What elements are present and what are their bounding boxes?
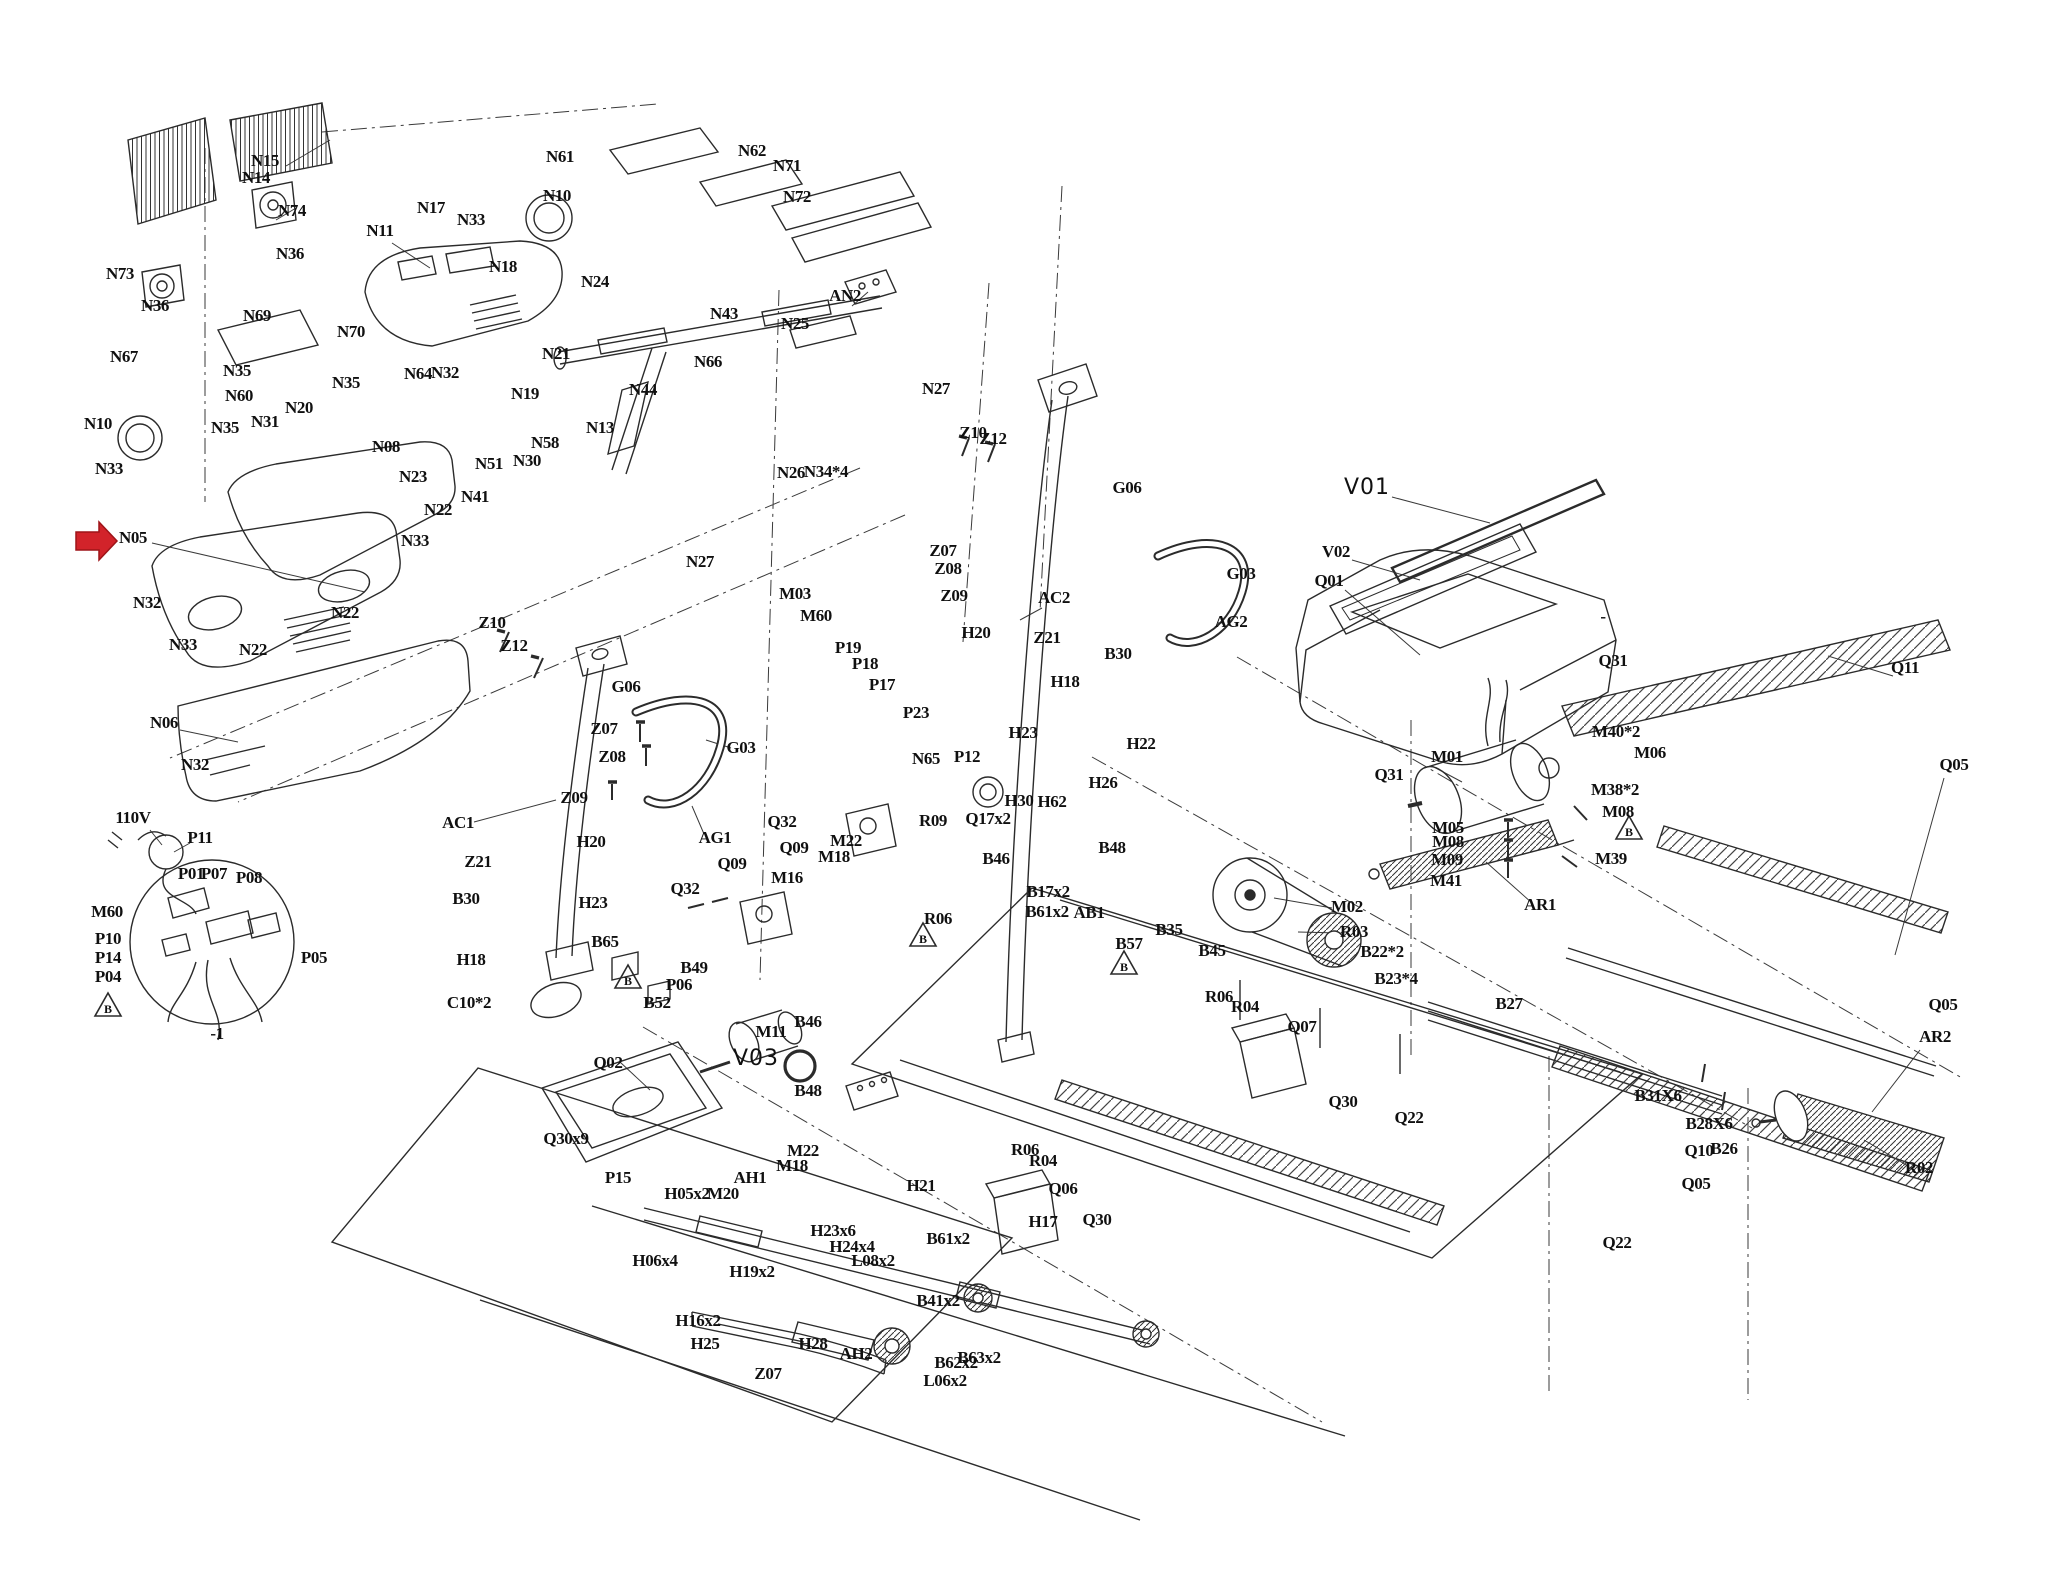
part-label-q30: Q30 <box>1082 1210 1111 1229</box>
warning-triangle-letter: B <box>104 1002 112 1016</box>
part-label-p18: P18 <box>852 654 878 673</box>
part-label-n25: N25 <box>781 314 809 333</box>
part-label-q05: Q05 <box>1928 995 1957 1014</box>
part-label-b46: B46 <box>794 1012 821 1031</box>
console-shell-n06 <box>178 640 470 801</box>
part-label-h62: H62 <box>1037 792 1066 811</box>
cupholder-ring-left <box>118 416 162 460</box>
side-rail-strip-left <box>1055 1080 1444 1225</box>
speaker-grille-n14 <box>128 118 216 224</box>
front-roller-ar1 <box>1369 820 1574 889</box>
part-label-n22: N22 <box>239 640 267 659</box>
part-label--1: -1 <box>210 1024 223 1043</box>
exploded-diagram: BBBBB N15N14N74N36N73N36N69N70N67N35N35N… <box>0 0 2048 1583</box>
warning-triangle-letter: B <box>624 974 632 988</box>
part-label-n36: N36 <box>141 296 169 315</box>
part-label-q31: Q31 <box>1598 651 1627 670</box>
part-label-b17x2: B17x2 <box>1026 882 1069 901</box>
part-label-p12: P12 <box>954 747 980 766</box>
n05-highlight-arrow <box>76 522 117 560</box>
part-label-n51: N51 <box>475 454 503 473</box>
part-label-h23: H23 <box>1008 723 1037 742</box>
part-label-n27: N27 <box>922 379 951 398</box>
part-label--: - <box>1600 607 1606 626</box>
part-label-b57: B57 <box>1115 934 1143 953</box>
part-label-b65: B65 <box>591 932 618 951</box>
bracket-b48 <box>846 1072 898 1110</box>
side-rail-strip-right <box>1657 826 1948 933</box>
part-label-n20: N20 <box>285 398 313 417</box>
part-label-z09: Z09 <box>560 788 587 807</box>
part-label-q01: Q01 <box>1314 571 1343 590</box>
part-label-n05: N05 <box>119 528 147 547</box>
handlebar-ag1 <box>636 700 723 804</box>
part-label-n58: N58 <box>531 433 559 452</box>
part-label-n33: N33 <box>401 531 429 550</box>
part-label-p14: P14 <box>95 948 122 967</box>
part-label-q11: Q11 <box>1891 658 1919 677</box>
part-label-b48: B48 <box>794 1081 821 1100</box>
part-label-c10-2: C10*2 <box>447 993 491 1012</box>
part-label-q17x2: Q17x2 <box>965 809 1010 828</box>
part-label-110v: 110V <box>115 808 151 827</box>
part-label-r06: R06 <box>924 909 952 928</box>
part-label-q07: Q07 <box>1287 1017 1317 1036</box>
part-label-n44: N44 <box>629 380 658 399</box>
part-label-n34-4: N34*4 <box>804 462 849 481</box>
part-label-m08: M08 <box>1602 802 1634 821</box>
part-label-m03: M03 <box>779 584 811 603</box>
part-label-n65: N65 <box>912 749 940 768</box>
sheet-v02 <box>1330 524 1536 634</box>
part-label-v01: V01 <box>1344 475 1390 500</box>
part-label-p06: P06 <box>666 975 692 994</box>
handlebar-ag1-inner <box>636 700 723 804</box>
part-label-q10: Q10 <box>1684 1141 1713 1160</box>
part-label-n17: N17 <box>417 198 446 217</box>
part-labels-layer: N15N14N74N36N73N36N69N70N67N35N35N64N32N… <box>84 141 1969 1390</box>
part-label-v02: V02 <box>1322 542 1350 561</box>
part-label-n32: N32 <box>181 755 209 774</box>
part-label-z07: Z07 <box>754 1364 782 1383</box>
motor-hood-q01 <box>1296 550 1616 765</box>
o-ring-v03 <box>785 1051 815 1081</box>
part-label-r04: R04 <box>1029 1151 1058 1170</box>
part-label-z21: Z21 <box>464 852 491 871</box>
overlay-sheet-n72 <box>792 203 931 262</box>
part-label-n70: N70 <box>337 322 365 341</box>
part-label-m08: M08 <box>1432 832 1464 851</box>
part-label-p05: P05 <box>301 948 327 967</box>
part-label-h26: H26 <box>1088 773 1117 792</box>
part-label-h25: H25 <box>690 1334 719 1353</box>
part-label-h20: H20 <box>576 832 605 851</box>
part-label-n26: N26 <box>777 463 805 482</box>
part-label-z07: Z07 <box>929 541 957 560</box>
part-label-n73: N73 <box>106 264 134 283</box>
part-label-b30: B30 <box>1104 644 1131 663</box>
part-label-ah2: AH2 <box>840 1344 873 1363</box>
part-label-n67: N67 <box>110 347 139 366</box>
part-label-n33: N33 <box>457 210 485 229</box>
part-label-b63x2: B63x2 <box>957 1348 1000 1367</box>
part-label-ag1: AG1 <box>699 828 732 847</box>
part-label-q32: Q32 <box>670 879 699 898</box>
part-label-n36: N36 <box>276 244 304 263</box>
part-label-q09: Q09 <box>779 838 808 857</box>
part-label-b45: B45 <box>1198 941 1225 960</box>
console-n11 <box>365 241 562 346</box>
part-label-q32: Q32 <box>767 812 796 831</box>
rail-q05-right <box>1566 948 1936 1076</box>
part-label-n71: N71 <box>773 156 801 175</box>
part-label-n13: N13 <box>586 418 614 437</box>
part-label-ar1: AR1 <box>1524 895 1556 914</box>
warning-triangle-letter: B <box>919 932 927 946</box>
part-label-b61x2: B61x2 <box>1025 902 1068 921</box>
part-label-p23: P23 <box>903 703 929 722</box>
part-label-q02: Q02 <box>593 1053 622 1072</box>
part-label-h22: H22 <box>1126 734 1155 753</box>
part-label-q31: Q31 <box>1374 765 1403 784</box>
part-label-an2: AN2 <box>829 286 861 305</box>
part-label-b22-2: B22*2 <box>1360 942 1403 961</box>
part-label-h21: H21 <box>906 1176 935 1195</box>
part-label-h23: H23 <box>578 893 607 912</box>
part-label-l06x2: L06x2 <box>923 1371 966 1390</box>
part-label-n43: N43 <box>710 304 738 323</box>
part-label-q05: Q05 <box>1939 755 1968 774</box>
part-label-z07: Z07 <box>590 719 618 738</box>
part-label-n61: N61 <box>546 147 574 166</box>
part-label-b61x2: B61x2 <box>926 1229 969 1248</box>
part-label-q30: Q30 <box>1328 1092 1357 1111</box>
part-label-n41: N41 <box>461 487 489 506</box>
part-label-n21: N21 <box>542 344 570 363</box>
part-label-q09: Q09 <box>717 854 746 873</box>
part-label-z08: Z08 <box>934 559 961 578</box>
part-label-n32: N32 <box>431 363 459 382</box>
part-label-n69: N69 <box>243 306 271 325</box>
part-label-l08x2: L08x2 <box>851 1251 894 1270</box>
part-label-b30: B30 <box>452 889 479 908</box>
part-label-m16: M16 <box>771 868 803 887</box>
part-label-n23: N23 <box>399 467 427 486</box>
part-label-m20: M20 <box>707 1184 739 1203</box>
part-label-n33: N33 <box>95 459 123 478</box>
part-label-h05x2: H05x2 <box>664 1184 709 1203</box>
part-label-h19x2: H19x2 <box>729 1262 774 1281</box>
part-label-p17: P17 <box>869 675 896 694</box>
part-label-ag2: AG2 <box>1215 612 1248 631</box>
part-label-h16x2: H16x2 <box>675 1311 720 1330</box>
part-label-n18: N18 <box>489 257 517 276</box>
part-label-m39: M39 <box>1595 849 1627 868</box>
part-label-n14: N14 <box>242 168 271 187</box>
part-label-h17: H17 <box>1028 1212 1058 1231</box>
part-label-q05: Q05 <box>1681 1174 1710 1193</box>
part-label-n35: N35 <box>211 418 239 437</box>
part-label-z08: Z08 <box>598 747 625 766</box>
part-label-n31: N31 <box>251 412 279 431</box>
part-label-n33: N33 <box>169 635 197 654</box>
part-label-m09: M09 <box>1431 850 1463 869</box>
part-label-m41: M41 <box>1430 871 1462 890</box>
part-label-m60: M60 <box>91 902 123 921</box>
part-label-m06: M06 <box>1634 743 1666 762</box>
part-label-n66: N66 <box>694 352 722 371</box>
part-label-b26: B26 <box>1710 1139 1737 1158</box>
base-frame-right-inner <box>900 900 1620 1232</box>
part-label-z09: Z09 <box>940 586 967 605</box>
part-label-q06: Q06 <box>1048 1179 1077 1198</box>
base-frame-bottom <box>480 1206 1345 1520</box>
part-label-m18: M18 <box>776 1156 808 1175</box>
part-label-m40-2: M40*2 <box>1592 722 1640 741</box>
part-label-r02: R02 <box>1905 1158 1933 1177</box>
part-label-g03: G03 <box>726 738 755 757</box>
base-frame-left <box>332 1068 1012 1422</box>
part-label-n74: N74 <box>278 201 307 220</box>
part-label-q22: Q22 <box>1394 1108 1423 1127</box>
drive-motor-m01 <box>1405 678 1559 840</box>
part-label-n27: N27 <box>686 552 715 571</box>
part-label-h18: H18 <box>456 950 485 969</box>
dashboard-upper-shell <box>228 442 455 580</box>
part-label-n19: N19 <box>511 384 539 403</box>
part-label-n72: N72 <box>783 187 811 206</box>
part-label-p15: P15 <box>605 1168 631 1187</box>
part-label-n30: N30 <box>513 451 541 470</box>
exploded-diagram-page: BBBBB N15N14N74N36N73N36N69N70N67N35N35N… <box>0 0 2048 1583</box>
part-label-b52: B52 <box>643 993 670 1012</box>
part-label-p10: P10 <box>95 929 121 948</box>
part-label-n11: N11 <box>366 221 393 240</box>
part-label-b35: B35 <box>1155 920 1182 939</box>
part-label-p11: P11 <box>187 828 212 847</box>
part-label-b23-4: B23*4 <box>1374 969 1418 988</box>
part-label-g03: G03 <box>1226 564 1255 583</box>
running-deck-q11 <box>1562 620 1950 736</box>
part-label-m11: M11 <box>756 1022 787 1041</box>
part-label-n62: N62 <box>738 141 766 160</box>
part-label-ac1: AC1 <box>442 813 474 832</box>
part-label-p08: P08 <box>236 868 262 887</box>
part-label-h06x4: H06x4 <box>632 1251 678 1270</box>
overlay-sheet-n61 <box>610 128 718 174</box>
phantom-lines <box>170 104 1962 1422</box>
part-label-r09: R09 <box>919 811 947 830</box>
warning-triangle-letter: B <box>1120 960 1128 974</box>
part-label-q30x9: Q30x9 <box>543 1129 588 1148</box>
part-label-h28: H28 <box>798 1334 827 1353</box>
part-label-m18: M18 <box>818 847 850 866</box>
warning-triangle-letter: B <box>1625 825 1633 839</box>
part-label-g06: G06 <box>611 677 640 696</box>
part-label-ar2: AR2 <box>1919 1027 1951 1046</box>
part-label-b31x6: B31X6 <box>1634 1086 1681 1105</box>
part-label-b48: B48 <box>1098 838 1125 857</box>
part-label-r03: R03 <box>1340 922 1368 941</box>
part-label-b41x2: B41x2 <box>916 1291 959 1310</box>
part-label-ac2: AC2 <box>1038 588 1070 607</box>
part-label-n35: N35 <box>332 373 360 392</box>
part-label-v03: V03 <box>733 1046 779 1071</box>
part-label-b27: B27 <box>1495 994 1523 1013</box>
part-label-p04: P04 <box>95 967 122 986</box>
part-label-ab1: AB1 <box>1074 903 1105 922</box>
part-label-r04: R04 <box>1231 997 1260 1016</box>
part-label-n10: N10 <box>84 414 112 433</box>
part-label-n35: N35 <box>223 361 251 380</box>
part-label-m38-2: M38*2 <box>1591 780 1639 799</box>
part-label-n64: N64 <box>404 364 433 383</box>
part-label-g06: G06 <box>1112 478 1141 497</box>
part-label-z12: Z12 <box>979 429 1006 448</box>
part-label-q22: Q22 <box>1602 1233 1631 1252</box>
part-label-n22: N22 <box>424 500 452 519</box>
part-label-n60: N60 <box>225 386 253 405</box>
part-label-n24: N24 <box>581 272 610 291</box>
part-label-n06: N06 <box>150 713 178 732</box>
part-label-n10: N10 <box>543 186 571 205</box>
part-label-m60: M60 <box>800 606 832 625</box>
part-label-m01: M01 <box>1431 747 1463 766</box>
part-label-b28x6: B28X6 <box>1685 1114 1732 1133</box>
part-label-z21: Z21 <box>1033 628 1060 647</box>
strip-v01 <box>1392 480 1604 582</box>
part-label-h20: H20 <box>961 623 990 642</box>
part-label-z10: Z10 <box>478 613 505 632</box>
part-label-m02: M02 <box>1331 897 1363 916</box>
part-label-n08: N08 <box>372 437 400 456</box>
part-label-p07: P07 <box>201 864 228 883</box>
latch-p12 <box>973 777 1003 807</box>
part-label-n22: N22 <box>331 603 359 622</box>
diagram-art <box>108 103 1962 1520</box>
part-label-h30: H30 <box>1004 791 1033 810</box>
part-label-n32: N32 <box>133 593 161 612</box>
part-label-b46: B46 <box>982 849 1009 868</box>
part-label-r06: R06 <box>1205 987 1233 1006</box>
incline-arm-h16 <box>692 1312 886 1374</box>
part-label-z12: Z12 <box>500 636 527 655</box>
part-label-h18: H18 <box>1050 672 1079 691</box>
